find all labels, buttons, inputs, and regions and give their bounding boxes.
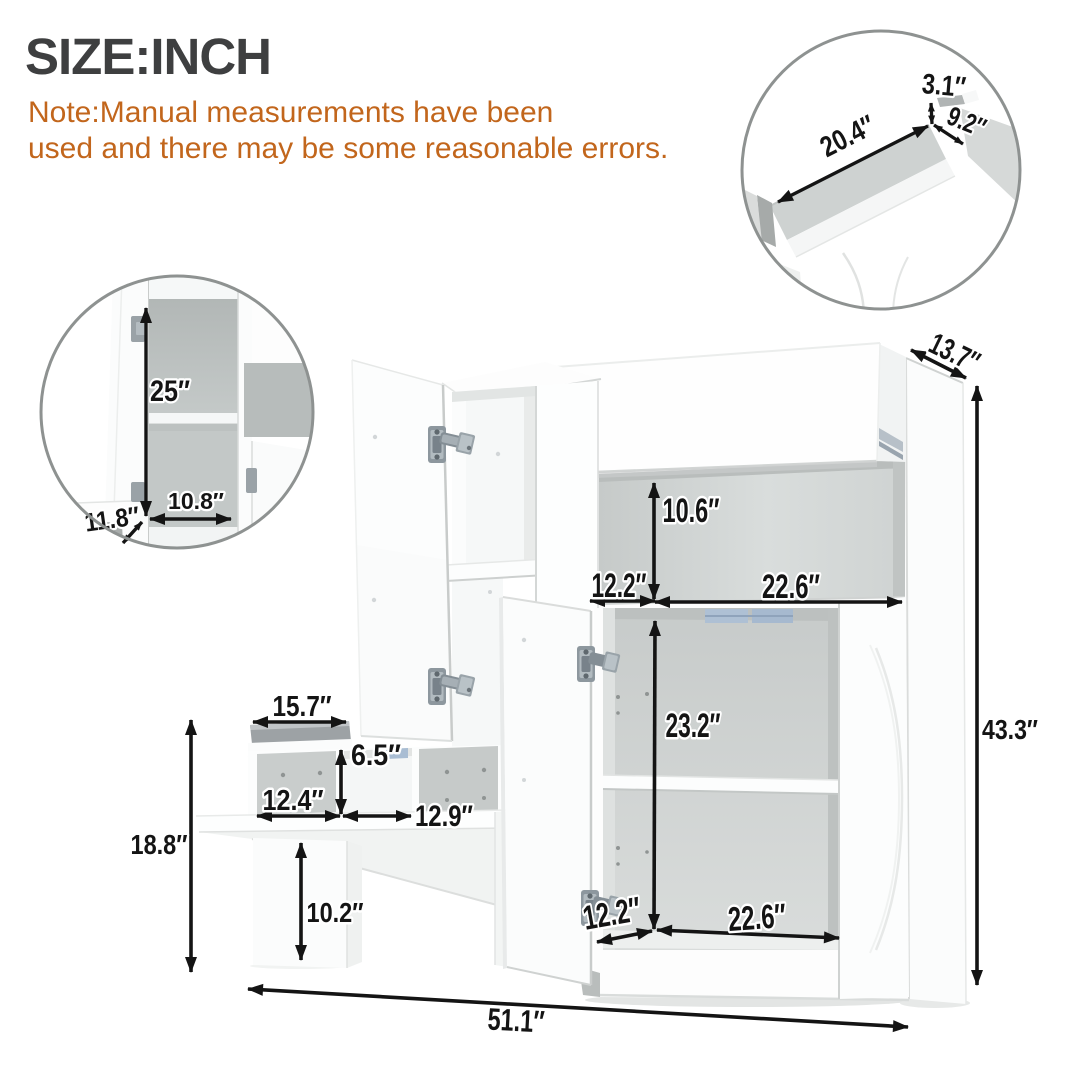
svg-text:51.1″: 51.1″ bbox=[487, 1002, 546, 1040]
svg-text:15.7″: 15.7″ bbox=[273, 691, 332, 723]
svg-text:23.2″: 23.2″ bbox=[666, 707, 721, 745]
svg-text:6.5″: 6.5″ bbox=[351, 739, 401, 772]
svg-text:10.8″: 10.8″ bbox=[168, 488, 224, 514]
svg-text:10.2″: 10.2″ bbox=[307, 897, 364, 928]
svg-text:SIZE:INCH: SIZE:INCH bbox=[25, 28, 271, 85]
svg-text:12.4″: 12.4″ bbox=[263, 785, 324, 817]
svg-text:Note:Manual measurements have: Note:Manual measurements have been bbox=[28, 96, 553, 129]
svg-text:10.6″: 10.6″ bbox=[663, 492, 720, 530]
svg-text:22.6″: 22.6″ bbox=[727, 897, 788, 939]
svg-text:25″: 25″ bbox=[150, 375, 190, 408]
svg-text:22.6″: 22.6″ bbox=[762, 568, 820, 606]
svg-text:12.2″: 12.2″ bbox=[592, 567, 647, 605]
svg-text:used and there may be some rea: used and there may be some reasonable er… bbox=[28, 132, 668, 165]
svg-text:18.8″: 18.8″ bbox=[131, 829, 188, 860]
svg-text:43.3″: 43.3″ bbox=[982, 714, 1038, 745]
svg-text:12.9″: 12.9″ bbox=[415, 800, 473, 833]
svg-text:3.1″: 3.1″ bbox=[921, 68, 968, 104]
